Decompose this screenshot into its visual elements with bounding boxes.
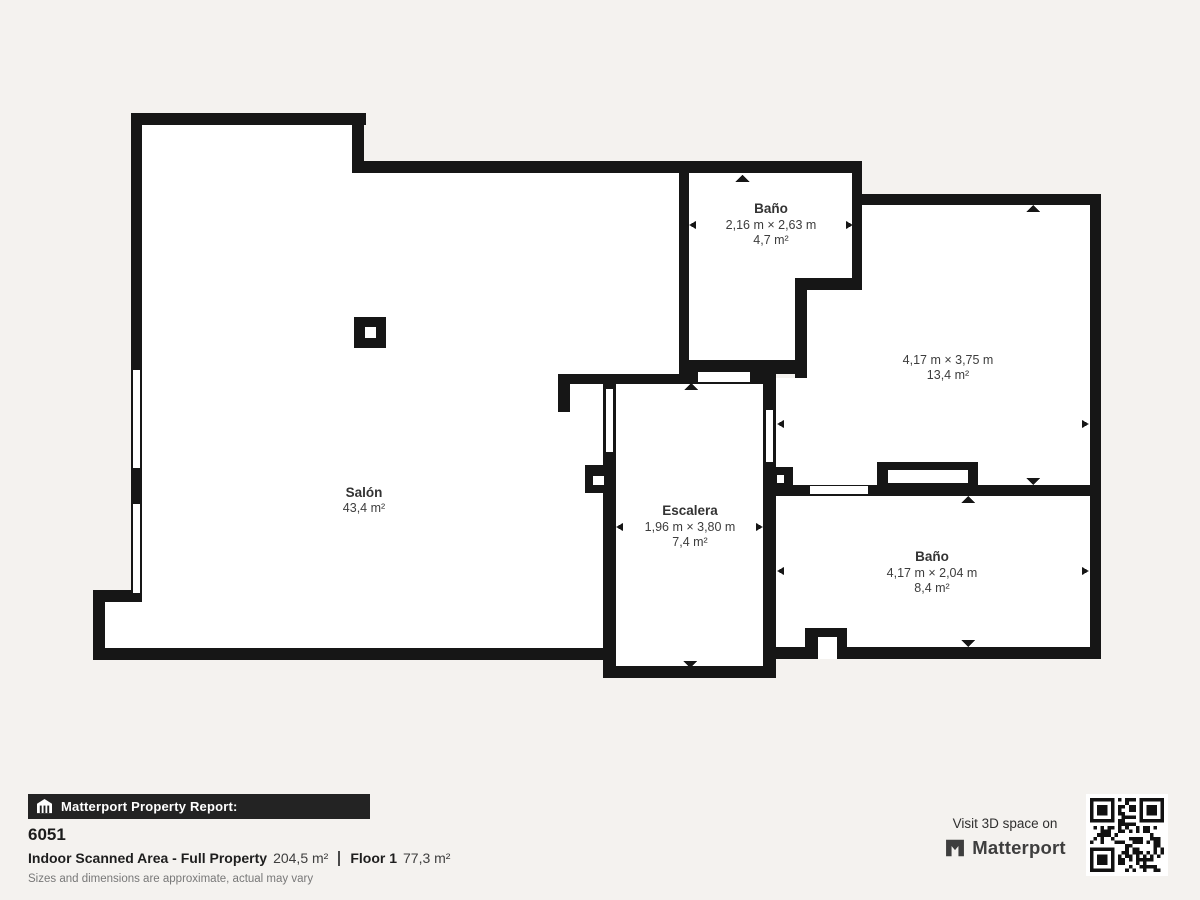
- room-dimensions: 4,17 m × 3,75 m: [848, 352, 1048, 368]
- floor-plan: [0, 0, 1200, 900]
- visit-3d-block: Visit 3D space on Matterport: [920, 815, 1090, 859]
- brand-name: Matterport: [972, 837, 1065, 859]
- room-dimensions: 1,96 m × 3,80 m: [590, 519, 790, 535]
- floor-value: 77,3 m²: [403, 850, 450, 866]
- disclaimer-text: Sizes and dimensions are approximate, ac…: [28, 873, 313, 885]
- room-label-bano-top: Baño 2,16 m × 2,63 m 4,7 m²: [671, 200, 871, 248]
- room-area: 7,4 m²: [590, 535, 790, 550]
- room-dimensions: 4,17 m × 2,04 m: [832, 565, 1032, 581]
- room-label-right-room: 4,17 m × 3,75 m 13,4 m²: [848, 352, 1048, 383]
- area-summary-line: Indoor Scanned Area - Full Property 204,…: [28, 850, 450, 866]
- room-name: Baño: [671, 200, 871, 217]
- property-id: 6051: [28, 825, 66, 845]
- room-name: Escalera: [590, 502, 790, 519]
- room-label-salon: Salón 43,4 m²: [264, 484, 464, 516]
- visit-text: Visit 3D space on: [920, 815, 1090, 833]
- room-name: Baño: [832, 548, 1032, 565]
- room-area: 43,4 m²: [264, 501, 464, 516]
- scanned-area-label: Indoor Scanned Area - Full Property: [28, 850, 267, 866]
- matterport-logo-icon: [944, 837, 966, 859]
- qr-code: [1086, 794, 1168, 876]
- room-area: 4,7 m²: [671, 233, 871, 248]
- divider: [338, 851, 340, 866]
- matterport-house-icon: [36, 799, 53, 814]
- room-area: 8,4 m²: [832, 581, 1032, 596]
- report-bar-title: Matterport Property Report:: [61, 799, 238, 814]
- property-report-page: Baño 2,16 m × 2,63 m 4,7 m² 4,17 m × 3,7…: [0, 0, 1200, 900]
- room-label-bano-bottom: Baño 4,17 m × 2,04 m 8,4 m²: [832, 548, 1032, 596]
- floor-label: Floor 1: [350, 850, 397, 866]
- room-name: Salón: [264, 484, 464, 501]
- scanned-area-value: 204,5 m²: [273, 850, 328, 866]
- room-label-escalera: Escalera 1,96 m × 3,80 m 7,4 m²: [590, 502, 790, 550]
- room-dimensions: 2,16 m × 2,63 m: [671, 217, 871, 233]
- report-title-bar: Matterport Property Report:: [28, 794, 370, 819]
- room-area: 13,4 m²: [848, 368, 1048, 383]
- matterport-brand: Matterport: [920, 837, 1090, 859]
